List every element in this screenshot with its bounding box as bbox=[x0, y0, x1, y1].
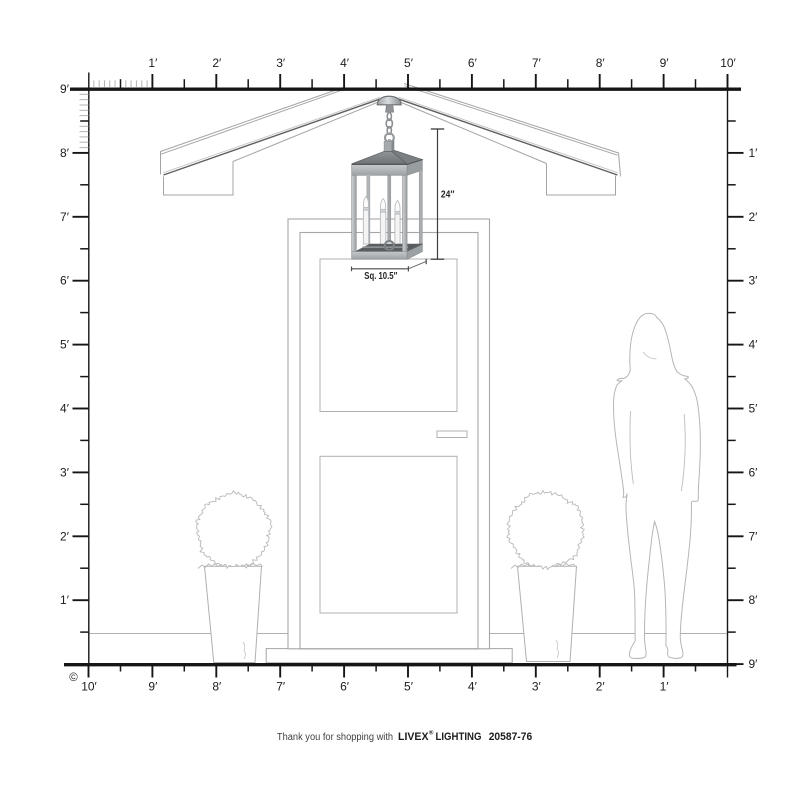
svg-text:10′: 10′ bbox=[81, 680, 97, 694]
svg-text:7′: 7′ bbox=[532, 56, 542, 70]
svg-text:8′: 8′ bbox=[60, 146, 70, 160]
svg-text:®: ® bbox=[429, 730, 434, 737]
svg-text:7′: 7′ bbox=[60, 210, 70, 224]
svg-text:2′: 2′ bbox=[212, 56, 222, 70]
svg-text:4′: 4′ bbox=[340, 56, 350, 70]
svg-text:8′: 8′ bbox=[596, 56, 606, 70]
svg-text:Thank you for shopping with: Thank you for shopping with bbox=[277, 732, 393, 743]
svg-text:2′: 2′ bbox=[596, 680, 606, 694]
svg-text:9′: 9′ bbox=[749, 657, 759, 671]
svg-text:5′: 5′ bbox=[60, 338, 70, 352]
svg-text:9′: 9′ bbox=[660, 56, 670, 70]
svg-text:1′: 1′ bbox=[148, 56, 158, 70]
svg-text:8′: 8′ bbox=[212, 680, 222, 694]
svg-text:2′: 2′ bbox=[60, 529, 70, 543]
svg-text:5′: 5′ bbox=[404, 56, 414, 70]
svg-text:8′: 8′ bbox=[749, 593, 759, 607]
svg-text:5′: 5′ bbox=[404, 680, 414, 694]
svg-text:3′: 3′ bbox=[276, 56, 286, 70]
svg-text:7′: 7′ bbox=[276, 680, 286, 694]
svg-text:6′: 6′ bbox=[340, 680, 350, 694]
svg-text:6′: 6′ bbox=[468, 56, 478, 70]
svg-text:Sq. 10.5″: Sq. 10.5″ bbox=[364, 271, 397, 282]
svg-text:©: © bbox=[69, 672, 78, 684]
svg-text:7′: 7′ bbox=[749, 529, 759, 543]
svg-text:6′: 6′ bbox=[749, 465, 759, 479]
svg-text:2′: 2′ bbox=[749, 210, 759, 224]
svg-text:10′: 10′ bbox=[720, 56, 736, 70]
svg-text:9′: 9′ bbox=[60, 82, 70, 96]
svg-text:5′: 5′ bbox=[749, 402, 759, 416]
svg-text:4′: 4′ bbox=[468, 680, 478, 694]
svg-text:1′: 1′ bbox=[660, 680, 670, 694]
svg-text:1′: 1′ bbox=[749, 146, 759, 160]
svg-text:4′: 4′ bbox=[60, 402, 70, 416]
svg-text:9′: 9′ bbox=[148, 680, 158, 694]
svg-text:4′: 4′ bbox=[749, 338, 759, 352]
svg-text:3′: 3′ bbox=[749, 274, 759, 288]
svg-text:1′: 1′ bbox=[60, 593, 70, 607]
svg-text:3′: 3′ bbox=[60, 465, 70, 479]
svg-text:3′: 3′ bbox=[532, 680, 542, 694]
svg-text:6′: 6′ bbox=[60, 274, 70, 288]
svg-text:LIVEXLIGHTING20587-76: LIVEXLIGHTING20587-76 bbox=[398, 731, 532, 743]
svg-text:24″: 24″ bbox=[441, 190, 455, 201]
